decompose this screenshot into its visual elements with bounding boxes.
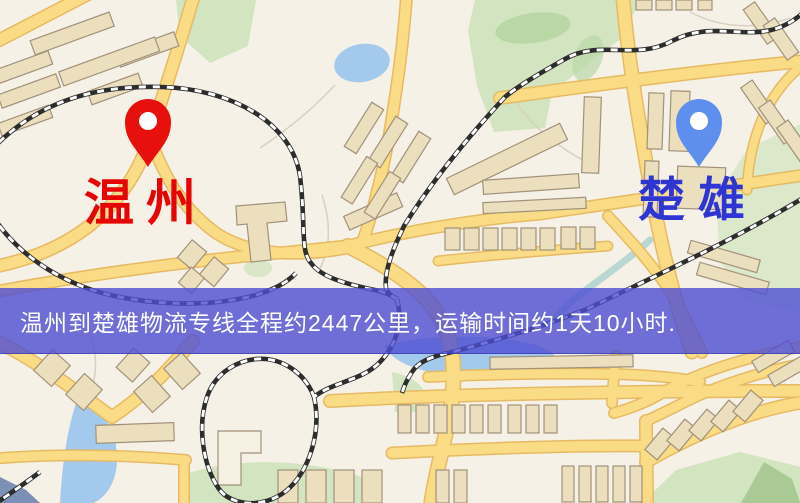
map-canvas[interactable]: 温州 楚雄 温州到楚雄物流专线全程约2447公里，运输时间约1天10小时. — [0, 0, 800, 503]
origin-label: 温州 — [84, 178, 208, 228]
map-image — [0, 0, 800, 503]
destination-label: 楚雄 — [638, 177, 758, 224]
route-info-text: 温州到楚雄物流专线全程约2447公里，运输时间约1天10小时. — [20, 304, 676, 338]
route-info-banner: 温州到楚雄物流专线全程约2447公里，运输时间约1天10小时. — [0, 288, 800, 354]
